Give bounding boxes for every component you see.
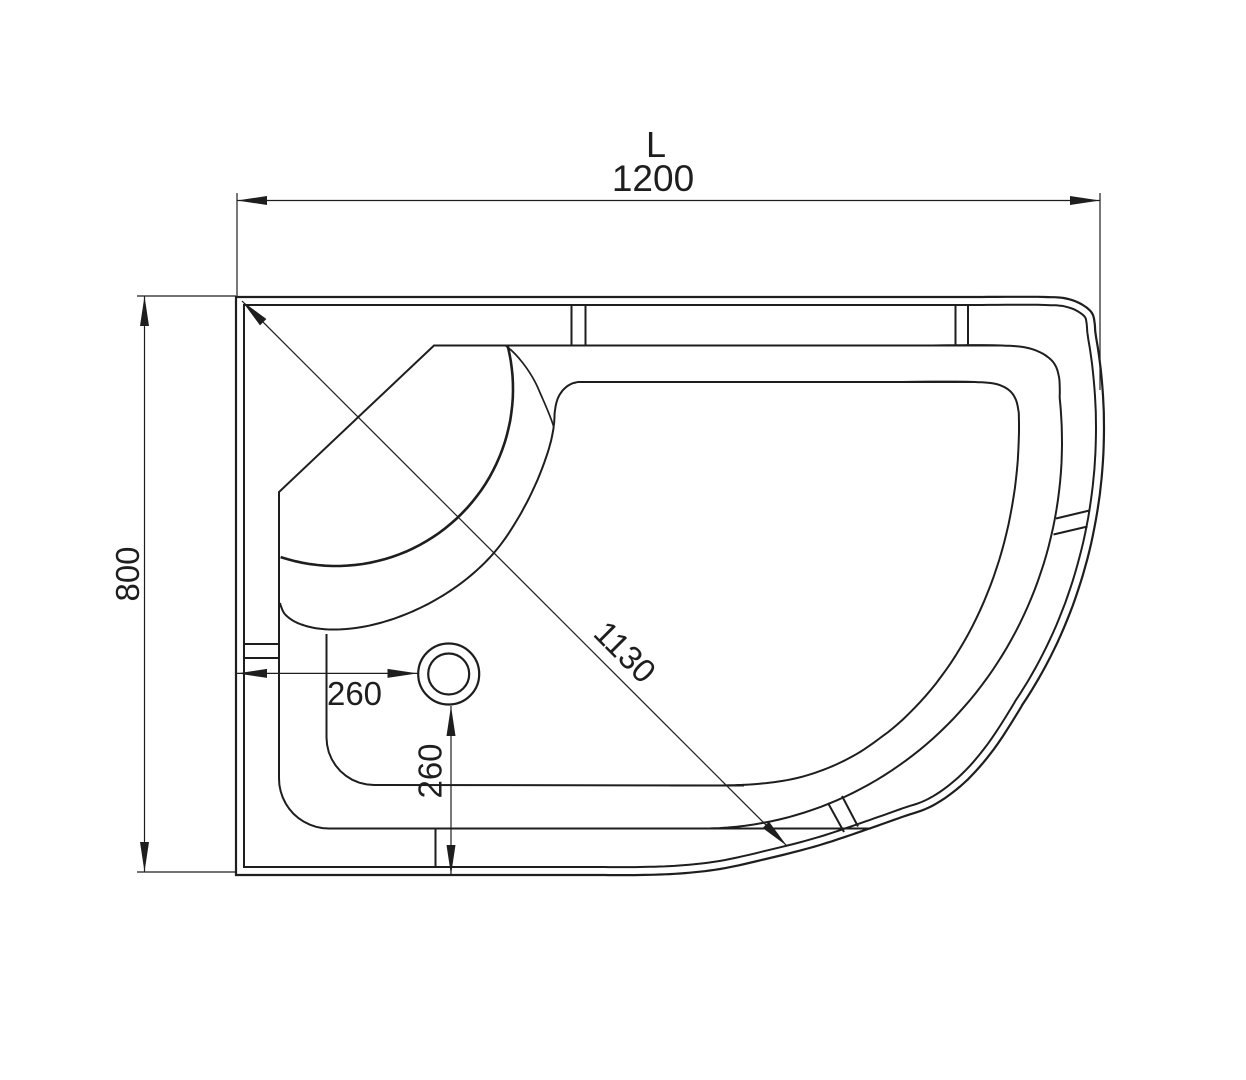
svg-text:260: 260 — [412, 743, 449, 798]
svg-text:260: 260 — [327, 675, 382, 712]
svg-text:800: 800 — [109, 546, 146, 601]
svg-text:1130: 1130 — [587, 614, 663, 690]
svg-text:1200: 1200 — [612, 158, 694, 199]
